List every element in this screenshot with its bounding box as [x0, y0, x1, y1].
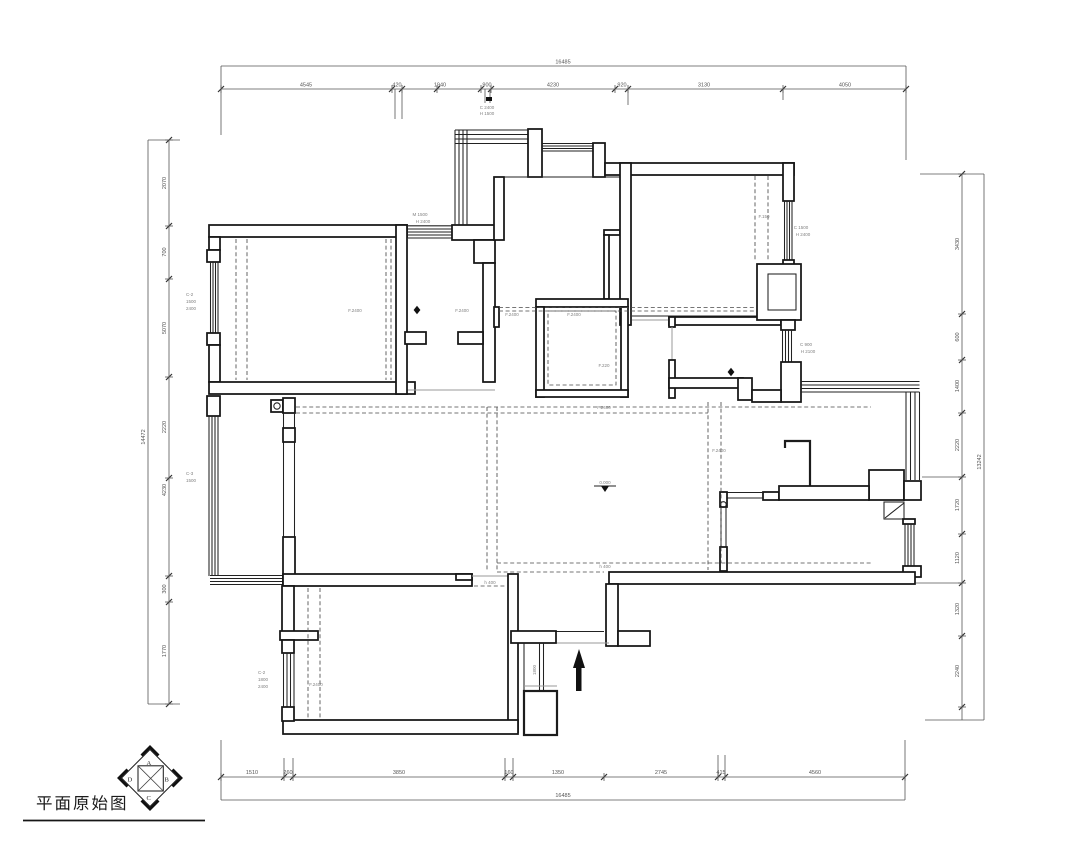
- svg-text:F.2400: F.2400: [712, 448, 726, 453]
- svg-text:900: 900: [482, 83, 491, 89]
- svg-text:1350: 1350: [552, 770, 564, 776]
- svg-text:D: D: [128, 777, 133, 784]
- svg-text:4230: 4230: [547, 83, 559, 89]
- svg-text:2745: 2745: [655, 770, 667, 776]
- svg-text:13242: 13242: [977, 454, 983, 469]
- svg-text:1940: 1940: [434, 83, 446, 89]
- svg-text:3430: 3430: [955, 238, 961, 250]
- svg-text:420: 420: [392, 83, 401, 89]
- svg-text:4560: 4560: [809, 770, 821, 776]
- svg-text:H 2400: H 2400: [416, 219, 431, 224]
- svg-text:1500: 1500: [186, 299, 197, 304]
- svg-text:1320: 1320: [955, 603, 961, 615]
- svg-text:H 2400: H 2400: [796, 232, 811, 237]
- svg-text:h 400: h 400: [484, 580, 496, 585]
- svg-text:1500: 1500: [186, 478, 197, 483]
- svg-text:3850: 3850: [393, 770, 405, 776]
- svg-text:2400: 2400: [258, 684, 269, 689]
- svg-text:h 400: h 400: [599, 564, 611, 569]
- svg-text:C-2: C-2: [186, 292, 194, 297]
- svg-text:1720: 1720: [955, 499, 961, 511]
- svg-text:F.2400: F.2400: [309, 682, 323, 687]
- svg-text:1800: 1800: [532, 664, 537, 675]
- svg-text:260: 260: [283, 770, 292, 776]
- svg-text:C-3: C-3: [186, 471, 194, 476]
- svg-text:700: 700: [162, 247, 168, 256]
- svg-text:2220: 2220: [955, 439, 961, 451]
- svg-text:F.2400: F.2400: [567, 312, 581, 317]
- svg-text:F.220: F.220: [598, 363, 610, 368]
- svg-text:1400: 1400: [955, 380, 961, 392]
- svg-text:14472: 14472: [141, 429, 147, 444]
- svg-text:160: 160: [504, 770, 513, 776]
- svg-text:5070: 5070: [162, 322, 168, 334]
- svg-text:C 900: C 900: [800, 342, 813, 347]
- svg-text:300: 300: [162, 584, 168, 593]
- svg-text:C: C: [147, 795, 151, 802]
- svg-text:3130: 3130: [698, 83, 710, 89]
- svg-text:F.2400: F.2400: [348, 308, 362, 313]
- svg-text:C-2: C-2: [258, 670, 266, 675]
- svg-text:1800: 1800: [258, 677, 269, 682]
- svg-text:F.2400: F.2400: [505, 312, 519, 317]
- svg-text:2220: 2220: [162, 421, 168, 433]
- svg-text:H 1500: H 1500: [480, 111, 495, 116]
- svg-text:16485: 16485: [555, 60, 570, 66]
- svg-text:1510: 1510: [246, 770, 258, 776]
- svg-text:H 2100: H 2100: [801, 349, 816, 354]
- svg-text:2240: 2240: [955, 665, 961, 677]
- svg-text:600: 600: [955, 332, 961, 341]
- svg-text:920: 920: [617, 83, 626, 89]
- svg-text:F.2400: F.2400: [597, 405, 611, 410]
- svg-text:0.000: 0.000: [599, 480, 611, 485]
- svg-text:4230: 4230: [162, 484, 168, 496]
- svg-text:M 1500: M 1500: [412, 212, 428, 217]
- svg-text:1120: 1120: [955, 552, 961, 564]
- svg-text:A: A: [147, 760, 152, 767]
- svg-text:C 2400: C 2400: [480, 105, 495, 110]
- svg-text:B: B: [165, 777, 170, 784]
- svg-text:F.2400: F.2400: [455, 308, 469, 313]
- svg-text:4050: 4050: [839, 83, 851, 89]
- svg-text:1770: 1770: [162, 645, 168, 657]
- svg-text:F.150: F.150: [758, 214, 770, 219]
- svg-text:16485: 16485: [555, 793, 570, 799]
- svg-text:4545: 4545: [300, 83, 312, 89]
- svg-text:2400: 2400: [186, 306, 197, 311]
- svg-text:2070: 2070: [162, 177, 168, 189]
- svg-text:C 1500: C 1500: [794, 225, 809, 230]
